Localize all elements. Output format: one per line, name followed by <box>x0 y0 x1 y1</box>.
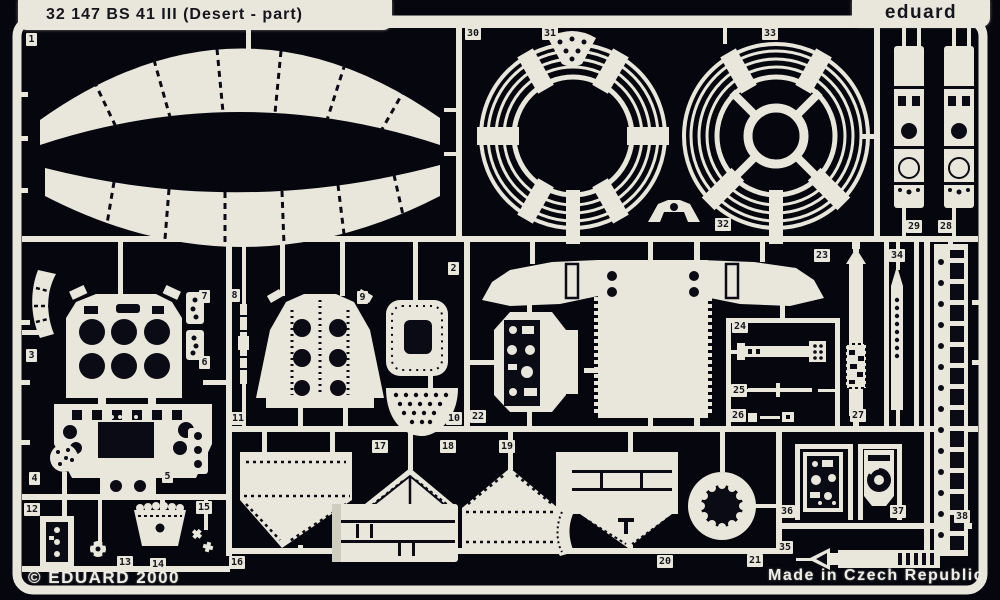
part-number-31: 31 <box>542 27 558 40</box>
pe-part-column-27 <box>846 242 866 416</box>
pe-part-fairing-left <box>482 260 598 306</box>
pe-part-pentagon-19 <box>462 468 558 548</box>
part-number-16: 16 <box>229 556 245 569</box>
part-number-33: 33 <box>762 27 778 40</box>
part-number-6: 6 <box>199 356 210 369</box>
pe-part-strip-29 <box>894 46 924 208</box>
part-number-38: 38 <box>954 510 970 523</box>
pe-part-thin-strip-8 <box>238 304 249 384</box>
part-number-12: 12 <box>24 503 40 516</box>
pe-part-reel-37 <box>864 450 894 506</box>
part-number-10: 10 <box>446 412 462 425</box>
part-number-9: 9 <box>357 291 368 304</box>
part-number-19: 19 <box>499 440 515 453</box>
pe-part-rod-25 <box>748 383 812 397</box>
pe-part-instrument-panel-upper <box>66 285 182 404</box>
part-number-15: 15 <box>196 501 212 514</box>
part-number-7: 7 <box>199 290 210 303</box>
made-in-text: Made in Czech Republic <box>768 567 984 585</box>
part-number-27: 27 <box>850 409 866 422</box>
part-number-36: 36 <box>779 505 795 518</box>
part-number-21: 21 <box>747 554 763 567</box>
pe-part-ring-33 <box>684 44 868 244</box>
part-number-29: 29 <box>906 220 922 233</box>
pe-part-ring-21 <box>688 472 756 540</box>
part-number-25: 25 <box>731 384 747 397</box>
part-number-11: 11 <box>230 412 246 425</box>
pe-part-flower-13 <box>90 541 106 557</box>
pe-part-bracket-32 <box>648 200 700 222</box>
part-number-14: 14 <box>150 558 166 571</box>
part-number-2: 2 <box>448 262 459 275</box>
pe-part-rod-24 <box>737 341 826 362</box>
pe-part-bulkhead-11 <box>256 289 384 408</box>
fret-drawing <box>0 0 1000 600</box>
part-number-26: 26 <box>730 409 746 422</box>
part-number-30: 30 <box>465 27 481 40</box>
part-number-1: 1 <box>26 33 37 46</box>
part-number-20: 20 <box>657 555 673 568</box>
part-number-3: 3 <box>26 349 37 362</box>
pe-part-cowl-band-lower <box>45 165 440 247</box>
part-number-34: 34 <box>889 249 905 262</box>
part-number-35: 35 <box>777 541 793 554</box>
pe-part-ring-31 <box>477 44 669 244</box>
pe-part-stippled-disc <box>50 444 78 472</box>
pe-part-fairing-right-23 <box>700 260 824 306</box>
part-number-24: 24 <box>732 320 748 333</box>
part-number-17: 17 <box>372 440 388 453</box>
copyright-text: © EDUARD 2000 <box>28 568 180 588</box>
pe-part-detail-strip-5 <box>188 428 208 474</box>
part-number-18: 18 <box>440 440 456 453</box>
part-number-8: 8 <box>229 289 240 302</box>
pe-part-console-36 <box>803 452 843 512</box>
part-number-5: 5 <box>162 470 173 483</box>
part-number-22: 22 <box>470 410 486 423</box>
pe-part-slats-18 <box>332 504 458 562</box>
part-number-23: 23 <box>814 249 830 262</box>
pe-part-pad-9 <box>386 300 448 376</box>
brand-name: eduard <box>885 2 957 23</box>
pe-part-large-panel <box>597 260 709 418</box>
pe-part-cross-15 <box>190 527 214 553</box>
brand-logo: eduard <box>852 0 990 27</box>
part-number-32: 32 <box>715 218 731 231</box>
pe-part-cowl-band-upper <box>40 48 440 145</box>
fret-title: 32 147 BS 41 III (Desert - part) <box>46 6 303 23</box>
part-number-13: 13 <box>117 556 133 569</box>
part-number-37: 37 <box>890 505 906 518</box>
photo-etch-fret-photo: 32 147 BS 41 III (Desert - part) eduard … <box>0 0 1000 600</box>
fret-title-tab: 32 147 BS 41 III (Desert - part) <box>18 0 392 30</box>
pe-part-rod-34 <box>891 266 903 410</box>
pe-part-small-26 <box>748 412 794 422</box>
part-number-4: 4 <box>29 472 40 485</box>
pe-part-panel-12 <box>40 516 74 568</box>
pe-part-hatch-20 <box>554 452 678 556</box>
part-number-28: 28 <box>938 220 954 233</box>
pe-part-strip-28 <box>944 46 974 208</box>
pe-part-radio-22 <box>494 312 578 412</box>
pe-part-curved-strip <box>32 270 56 338</box>
